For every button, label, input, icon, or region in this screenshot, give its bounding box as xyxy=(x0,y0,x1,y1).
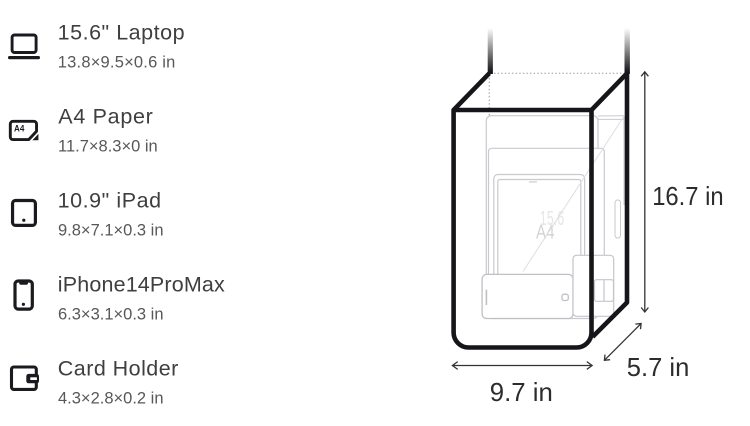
svg-text:A4: A4 xyxy=(14,123,24,133)
svg-text:4.3×2.8×0.2 in: 4.3×2.8×0.2 in xyxy=(58,390,164,408)
svg-text:11.7×8.3×0 in: 11.7×8.3×0 in xyxy=(58,138,158,156)
svg-text:5.7 in: 5.7 in xyxy=(627,352,690,382)
svg-text:9.8×7.1×0.3 in: 9.8×7.1×0.3 in xyxy=(58,222,164,240)
svg-text:6.3×3.1×0.3 in: 6.3×3.1×0.3 in xyxy=(58,306,164,324)
svg-text:iPhone14ProMax: iPhone14ProMax xyxy=(58,273,225,297)
svg-text:10.9" iPad: 10.9" iPad xyxy=(58,189,162,213)
svg-text:15.6" Laptop: 15.6" Laptop xyxy=(58,21,185,45)
svg-text:Card Holder: Card Holder xyxy=(58,357,179,381)
svg-text:A4: A4 xyxy=(536,223,555,244)
svg-text:9.7 in: 9.7 in xyxy=(490,377,553,407)
svg-text:A4 Paper: A4 Paper xyxy=(58,105,153,129)
svg-text:16.7 in: 16.7 in xyxy=(652,181,724,211)
svg-text:13.8×9.5×0.6 in: 13.8×9.5×0.6 in xyxy=(58,54,176,72)
